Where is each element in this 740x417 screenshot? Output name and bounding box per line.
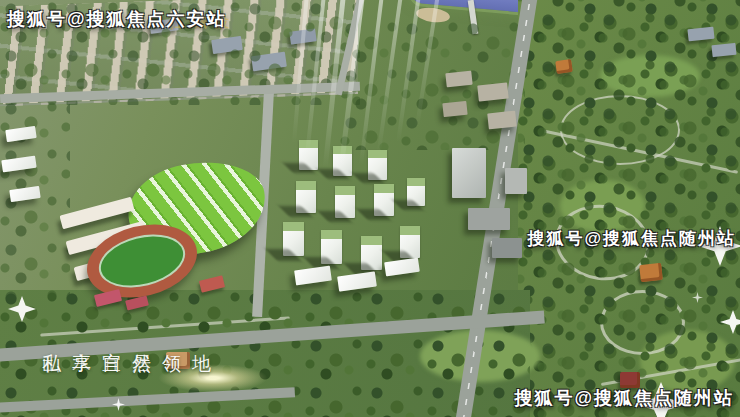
office-building	[492, 238, 522, 258]
school-building	[59, 197, 134, 230]
slogan-part2: 私享自然领地	[42, 351, 222, 377]
tower	[368, 150, 387, 180]
tower	[400, 226, 420, 258]
tower	[374, 184, 394, 216]
office-building	[452, 148, 486, 198]
tower	[321, 230, 342, 264]
tower	[283, 222, 304, 256]
tower	[407, 178, 425, 206]
low-rise-building	[384, 258, 420, 277]
office-building	[505, 168, 527, 194]
aerial-render-scene: 江城投 搜狐号@搜狐焦点六安站 搜狐号@搜狐焦点随州站 搜狐号@搜狐焦点随州站 …	[0, 0, 740, 417]
building	[445, 71, 472, 88]
low-rise-building	[337, 271, 377, 291]
pavilion-roof	[639, 263, 663, 282]
low-rise-building	[294, 266, 332, 286]
building-roof	[711, 43, 736, 57]
watermark-top-left: 搜狐号@搜狐焦点六安站	[7, 7, 227, 31]
office-building	[468, 208, 510, 230]
pavilion-roof	[555, 59, 573, 74]
tower	[296, 181, 316, 213]
tower	[335, 186, 355, 218]
building	[477, 82, 509, 101]
building	[442, 101, 467, 117]
watermark-middle-right: 搜狐号@搜狐焦点随州站	[527, 227, 736, 250]
building	[487, 111, 517, 130]
tower	[361, 236, 382, 270]
watermark-bottom-right: 搜狐号@搜狐焦点随州站	[514, 386, 734, 410]
tree-cluster	[518, 0, 740, 417]
sports-field	[93, 226, 190, 296]
